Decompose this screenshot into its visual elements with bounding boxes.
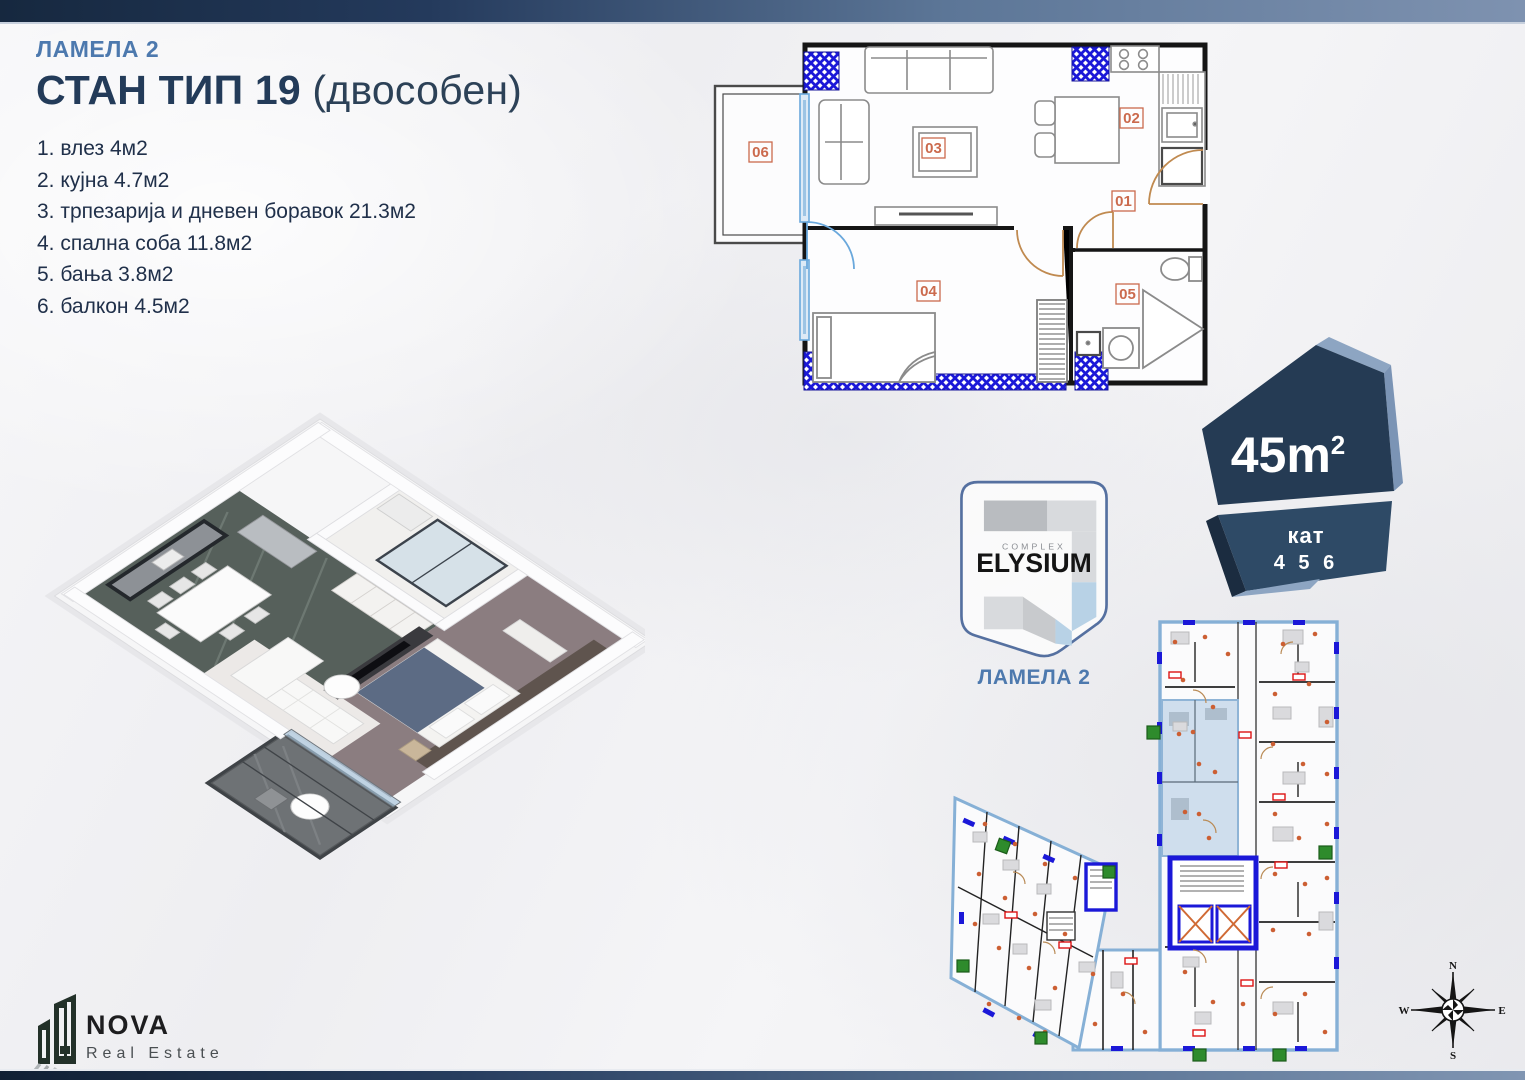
window-strips [800,94,809,340]
nova-building-icon [24,994,76,1078]
page-header: ЛАМЕЛА 2 СТАН ТИП 19 (двособен) [36,36,522,114]
room-label-kitchen: 02 [1120,108,1143,128]
badge-floor-label: кат [1287,523,1324,548]
room-label-entry: 01 [1112,191,1135,211]
nova-tagline-text: Real Estate [86,1045,224,1062]
svg-text:05: 05 [1119,286,1136,303]
svg-text:02: 02 [1123,110,1140,127]
bedroom-furniture [813,313,935,382]
compass-rose: N S E W [1398,960,1508,1060]
building-floor-plan [943,612,1425,1062]
lamela-heading: ЛАМЕЛА 2 [36,36,522,63]
apartment-3d-render [25,400,645,975]
svg-text:04: 04 [920,283,937,300]
bottom-gradient-bar [0,1069,1525,1080]
compass-w: W [1399,1005,1410,1017]
room-area-list: 1. влез 4м2 2. кујна 4.7м2 3. трпезарија… [37,133,416,322]
list-item: 4. спална соба 11.8м2 [37,228,416,260]
room-label-living: 03 [922,138,945,158]
nova-logo: NOVA Real Estate [22,972,232,1078]
apartment-2d-floorplan: 06 03 02 01 04 05 [703,36,1210,396]
room-label-bath: 05 [1116,284,1139,304]
list-item: 6. балкон 4.5м2 [37,291,416,323]
room-label-balcony: 06 [749,142,772,162]
nova-name-text: NOVA [86,1010,170,1040]
list-item: 2. кујна 4.7м2 [37,165,416,197]
list-item: 1. влез 4м2 [37,133,416,165]
badge-area-text: 45m2 [1231,427,1346,483]
svg-text:06: 06 [752,144,769,161]
compass-e: E [1498,1005,1505,1017]
brochure-page: ЛАМЕЛА 2 СТАН ТИП 19 (двособен) 1. влез … [0,0,1525,1080]
page-title: СТАН ТИП 19 (двособен) [36,67,522,114]
compass-s: S [1450,1050,1456,1060]
elysium-name-text: ELYSIUM [976,548,1092,578]
top-gradient-bar [0,0,1525,24]
list-item: 3. трпезарија и дневен боравок 21.3м2 [37,196,416,228]
stair-core [1170,858,1256,948]
svg-text:03: 03 [925,140,942,157]
room-label-bedroom: 04 [917,281,940,301]
badge-floor-numbers: 4 5 6 [1274,552,1338,574]
apartment-type-suffix: (двособен) [301,67,522,113]
compass-n: N [1449,960,1457,972]
svg-text:01: 01 [1115,193,1132,210]
apartment-type-title: СТАН ТИП 19 [36,67,301,113]
balcony-outline [715,86,809,243]
list-item: 5. бања 3.8м2 [37,259,416,291]
area-badge: 45m2 кат 4 5 6 [1188,333,1416,603]
hall-wardrobe [1037,300,1067,382]
